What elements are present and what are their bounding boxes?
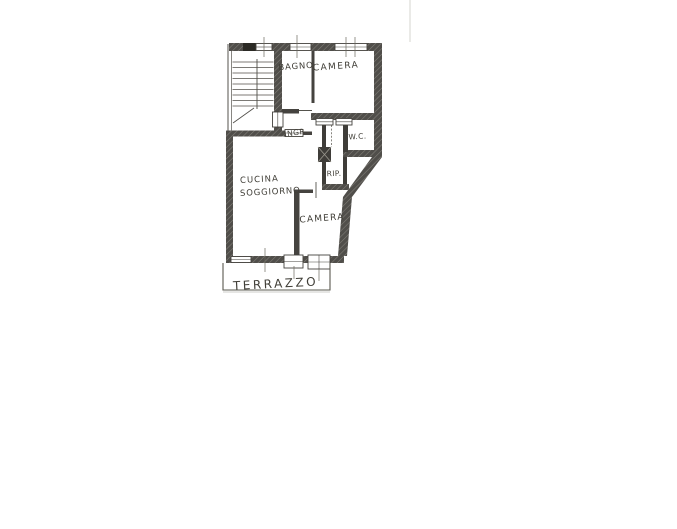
window bbox=[335, 44, 367, 51]
camera2-top-right-wall bbox=[322, 184, 349, 190]
bagno-camera-divider-wall bbox=[312, 51, 315, 103]
room-label-ripostiglio: RIP. bbox=[326, 169, 341, 179]
window bbox=[231, 257, 251, 263]
top-wall-segment bbox=[311, 43, 335, 51]
slanted-outer-wall-lower bbox=[338, 197, 352, 256]
floor-plan-drawing: BAGNO CAMERA INGR. W.C. RIP. CUCINA SOGG… bbox=[0, 0, 677, 529]
cucina-top-wall bbox=[226, 131, 285, 137]
rip-door bbox=[316, 119, 333, 126]
top-wall-segment bbox=[229, 43, 243, 51]
terrace-door bbox=[308, 255, 330, 269]
top-wall-segment bbox=[272, 43, 290, 51]
slanted-outer-wall-upper bbox=[343, 157, 382, 197]
stairwell-right-wall bbox=[274, 51, 282, 112]
wc-left-wall bbox=[343, 125, 348, 152]
stair-direction-line bbox=[233, 108, 254, 123]
room-label-ingresso: INGR. bbox=[284, 126, 308, 138]
room-label-cucina-line1: CUCINA bbox=[240, 174, 279, 186]
top-wall-pillar bbox=[243, 43, 256, 51]
room-label-camera-bottom: CAMERA bbox=[299, 212, 345, 225]
right-outer-wall bbox=[374, 51, 382, 153]
room-label-wc: W.C. bbox=[348, 132, 367, 142]
top-wall-segment bbox=[367, 43, 382, 51]
wc-bottom-wall bbox=[343, 150, 382, 157]
left-outer-wall bbox=[226, 131, 233, 263]
room-label-bagno: BAGNO bbox=[278, 61, 314, 73]
camera2-left-wall bbox=[294, 193, 300, 256]
terrace-door bbox=[284, 255, 303, 268]
scanned-floor-plan-page: BAGNO CAMERA INGR. W.C. RIP. CUCINA SOGG… bbox=[0, 0, 677, 529]
staircase bbox=[233, 59, 274, 123]
wc-door bbox=[336, 119, 352, 126]
entrance-door bbox=[273, 112, 284, 127]
room-label-cucina-line2: SOGGIORNO bbox=[240, 186, 301, 199]
bagno-bottom-wall bbox=[282, 109, 299, 114]
window bbox=[290, 44, 311, 51]
shaft-hatch bbox=[318, 147, 331, 162]
stair-treads bbox=[233, 62, 274, 106]
exterior-walls bbox=[226, 43, 382, 263]
rip-right-wall bbox=[343, 157, 347, 188]
room-label-camera-top: CAMERA bbox=[313, 60, 360, 73]
